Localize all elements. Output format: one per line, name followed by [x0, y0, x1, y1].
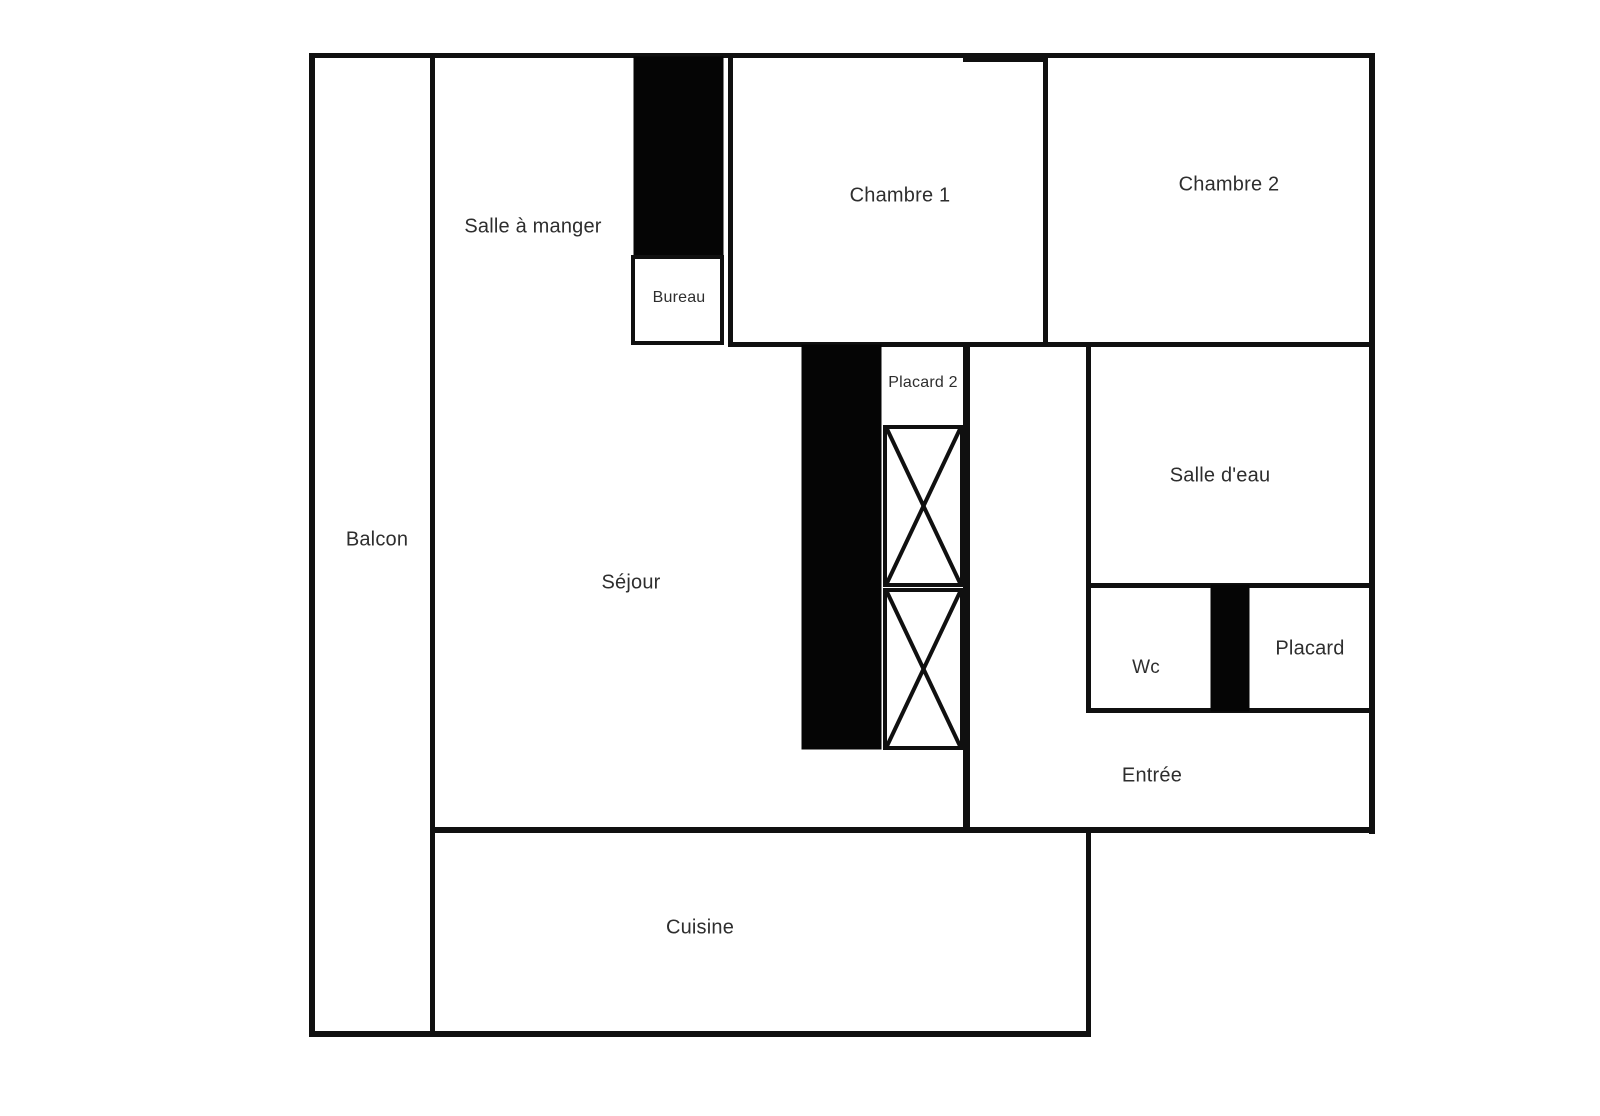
room-area-cuisine	[435, 833, 1086, 1031]
closet-symbol-2	[885, 590, 962, 748]
room-label-sejour: Séjour	[601, 572, 660, 595]
room-label-cuisine: Cuisine	[666, 917, 734, 940]
room-area-wc	[1091, 588, 1211, 708]
room-label-placard-2: Placard 2	[888, 374, 957, 392]
room-label-balcon: Balcon	[346, 529, 408, 552]
wall-outer-right	[1369, 53, 1375, 834]
room-label-chambre-2: Chambre 2	[1179, 174, 1280, 197]
room-label-salle-deau: Salle d'eau	[1170, 465, 1271, 488]
wall-corridor-left	[963, 342, 970, 833]
closet-symbol-1	[885, 427, 962, 585]
shaft-central-block	[802, 345, 881, 749]
room-area-chambre-2	[1048, 58, 1369, 342]
wall-cuisine-right	[1086, 827, 1091, 1037]
wall-outer-bottom	[309, 1031, 1091, 1037]
shaft-upper-block	[634, 57, 723, 258]
room-label-wc: Wc	[1132, 657, 1160, 679]
floor-plan: Balcon Salle à manger Bureau Chambre 1 C…	[0, 0, 1600, 1116]
room-label-bureau: Bureau	[653, 289, 706, 307]
room-label-chambre-1: Chambre 1	[850, 185, 951, 208]
room-area-salle-a-manger	[435, 58, 634, 342]
room-label-entree: Entrée	[1122, 765, 1182, 788]
room-label-placard: Placard	[1275, 638, 1344, 661]
room-label-salle-a-manger: Salle à manger	[464, 216, 601, 239]
shaft-wc-block	[1211, 585, 1249, 711]
